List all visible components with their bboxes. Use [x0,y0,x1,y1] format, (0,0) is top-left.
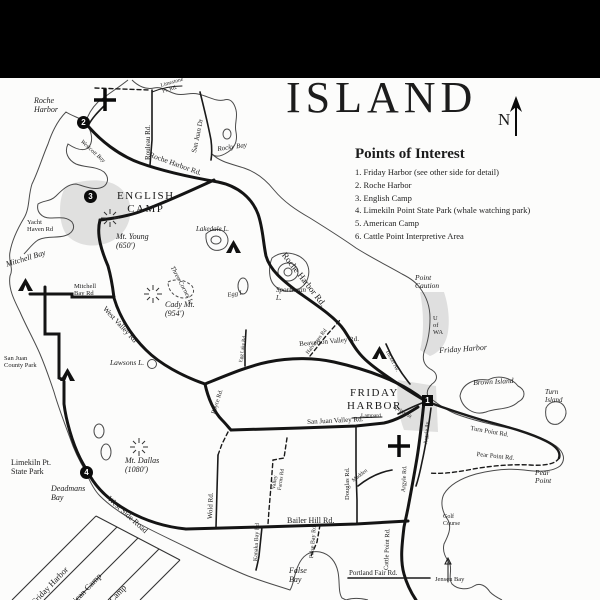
poi-marker-2: 2 [77,116,90,129]
summit-icon [144,285,162,303]
mt-dallas-label: Mt. Dallas (1080') [125,457,159,475]
airport-cross-icon [388,435,410,457]
legend-item: 2. Roche Harbor [355,179,595,192]
golf-course-label: Golf Course [443,514,460,527]
false-bay-label: False Bay [289,567,307,585]
mt-young-label: Mt. Young (650') [116,233,149,251]
yacht-haven-rd-label: Yacht Haven Rd [27,219,53,233]
portland-fair-rd-label: Portland Fair Rd. [349,570,397,578]
legend-item: 4. Limekiln Point State Park (whale watc… [355,204,595,217]
campground-icon [18,278,33,291]
scanned-island-map: ISLAND N Points of Interest 1. Friday Ha… [0,0,600,600]
legend-title: Points of Interest [355,146,595,163]
poi-marker-3: 3 [84,190,97,203]
sportsman-lake-label: Sportsman L. [276,287,306,302]
poi-marker-4: 4 [80,466,93,479]
poi-marker-1: 1 [422,395,433,406]
legend-item: 1. Friday Harbor (see other side for det… [355,166,595,179]
english-camp-label: ENGLISH CAMP [117,190,175,216]
summit-icon [130,438,148,456]
points-of-interest-legend: Points of Interest 1. Friday Harbor (see… [355,146,595,243]
cattle-point-rd-label: Cattle Point Rd. [383,528,392,570]
douglas-rd-label: Douglas Rd. [344,468,351,501]
turn-island-label: Turn Island [545,389,563,404]
argyle-rd-label: Argyle Rd. [401,465,409,492]
lampard-rd-label: Lampard [361,413,381,419]
map-title: ISLAND [286,72,477,123]
san-juan-county-park-label: San Juan County Park [4,355,37,369]
legend-item: 6. Cattle Point Interpretive Area [355,230,595,243]
mitchell-bay-rd-label: Mitchell Bay Rd [74,283,96,297]
legend-item: 5. American Camp [355,217,595,230]
jensen-bay-label: Jensen Bay [435,576,464,583]
north-arrow-letter: N [498,110,510,130]
point-caution-label: Point Caution [415,274,439,291]
scan-border [0,0,600,78]
lakedale-lake-label: Lakedale L. [196,226,229,234]
campground-icon [226,240,241,253]
campground-icon [60,368,75,381]
airport-cross-icon [94,89,116,111]
lawsons-lake-label: Lawsons L. [110,359,144,367]
pear-point-label: Pear Point [535,469,551,486]
roche-harbor-label: Roche Harbor [34,97,58,115]
limekiln-state-park-label: Limekiln Pt. State Park [11,459,51,477]
legend-item: 3. English Camp [355,192,595,205]
wold-rd-label: Wold Rd. [207,492,216,519]
deadmans-bay-label: Deadmans Bay [51,485,85,503]
bailer-hill-rd-label: Bailer Hill Rd. [287,517,334,526]
north-arrow-icon [510,96,522,136]
campground-icons [18,240,387,381]
u-of-wa-label: U of WA [433,315,443,336]
